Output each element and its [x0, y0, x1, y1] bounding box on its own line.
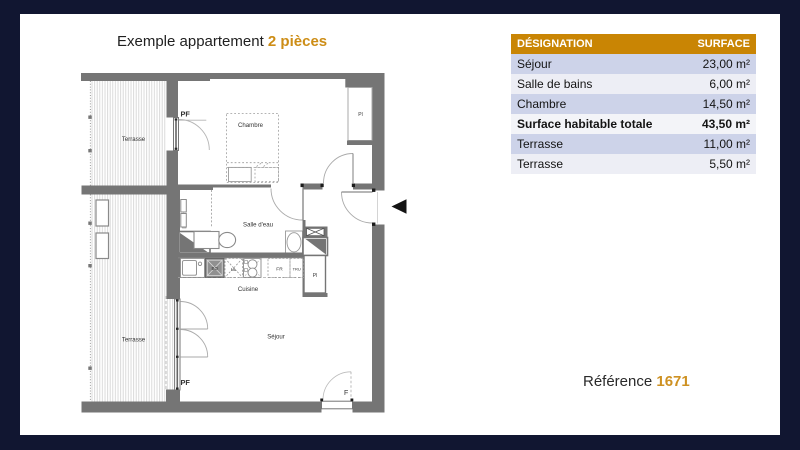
svg-text:Terrasse: Terrasse [122, 136, 146, 143]
svg-text:UL: UL [231, 267, 237, 272]
svg-text:Chambre: Chambre [238, 122, 264, 129]
svg-text:F: F [344, 390, 348, 397]
svg-text:PF: PF [181, 110, 191, 119]
svg-text:Cuisine: Cuisine [238, 286, 259, 293]
svg-text:FR: FR [276, 266, 283, 272]
svg-text:Salle d'eau: Salle d'eau [243, 221, 273, 228]
svg-text:PF: PF [181, 378, 191, 387]
svg-text:Séjour: Séjour [267, 333, 285, 340]
svg-text:Pl: Pl [358, 112, 362, 118]
svg-text:BO: BO [212, 266, 219, 271]
svg-text:TRU: TRU [293, 266, 301, 271]
svg-text:Pl: Pl [313, 273, 317, 279]
svg-text:Terrasse: Terrasse [122, 336, 146, 343]
